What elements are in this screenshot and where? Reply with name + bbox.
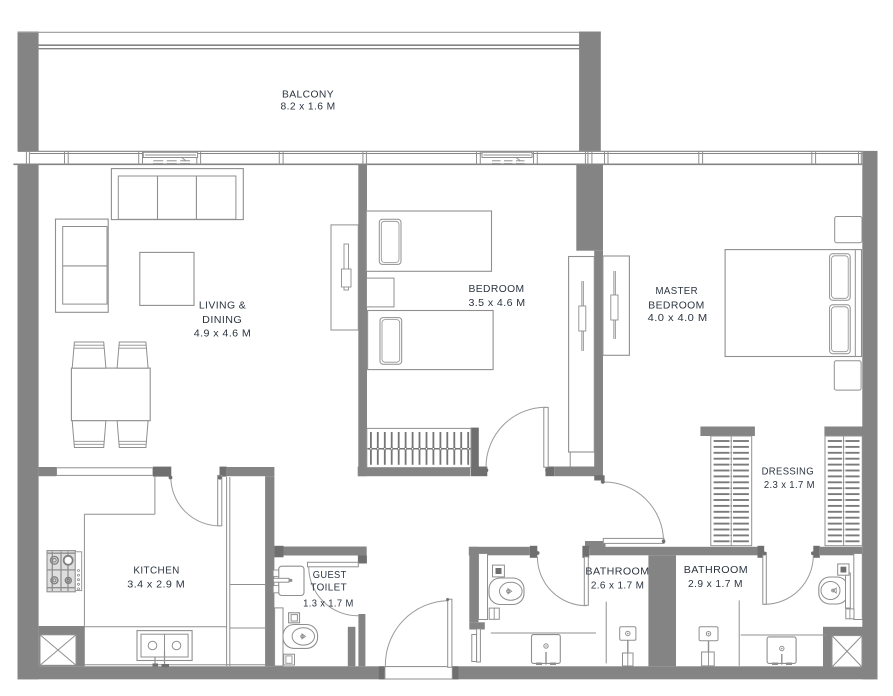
svg-text:1.3 x 1.7 M: 1.3 x 1.7 M <box>303 597 354 609</box>
svg-text:BATHROOM: BATHROOM <box>585 566 649 578</box>
svg-text:GUEST: GUEST <box>313 569 347 581</box>
svg-text:DRESSING: DRESSING <box>762 465 814 477</box>
svg-text:2.3 x 1.7 M: 2.3 x 1.7 M <box>764 479 815 491</box>
svg-text:BATHROOM: BATHROOM <box>684 564 748 576</box>
svg-text:BEDROOM: BEDROOM <box>469 283 525 295</box>
svg-text:DINING: DINING <box>202 314 242 326</box>
svg-text:2.9 x 1.7 M: 2.9 x 1.7 M <box>688 578 743 590</box>
svg-text:2.6 x 1.7 M: 2.6 x 1.7 M <box>591 580 645 592</box>
svg-text:KITCHEN: KITCHEN <box>133 564 179 576</box>
svg-text:4.0 x 4.0 M: 4.0 x 4.0 M <box>648 312 708 324</box>
svg-text:LIVING &: LIVING & <box>199 300 246 312</box>
svg-text:BEDROOM: BEDROOM <box>648 300 704 312</box>
svg-text:4.9 x 4.6 M: 4.9 x 4.6 M <box>194 328 252 340</box>
svg-text:3.4 x 2.9 M: 3.4 x 2.9 M <box>127 579 185 591</box>
svg-text:TOILET: TOILET <box>310 582 347 594</box>
svg-text:8.2 x 1.6 M: 8.2 x 1.6 M <box>281 101 336 113</box>
svg-text:BALCONY: BALCONY <box>282 89 334 101</box>
svg-text:3.5 x 4.6 M: 3.5 x 4.6 M <box>469 297 526 309</box>
svg-text:MASTER: MASTER <box>656 285 698 297</box>
